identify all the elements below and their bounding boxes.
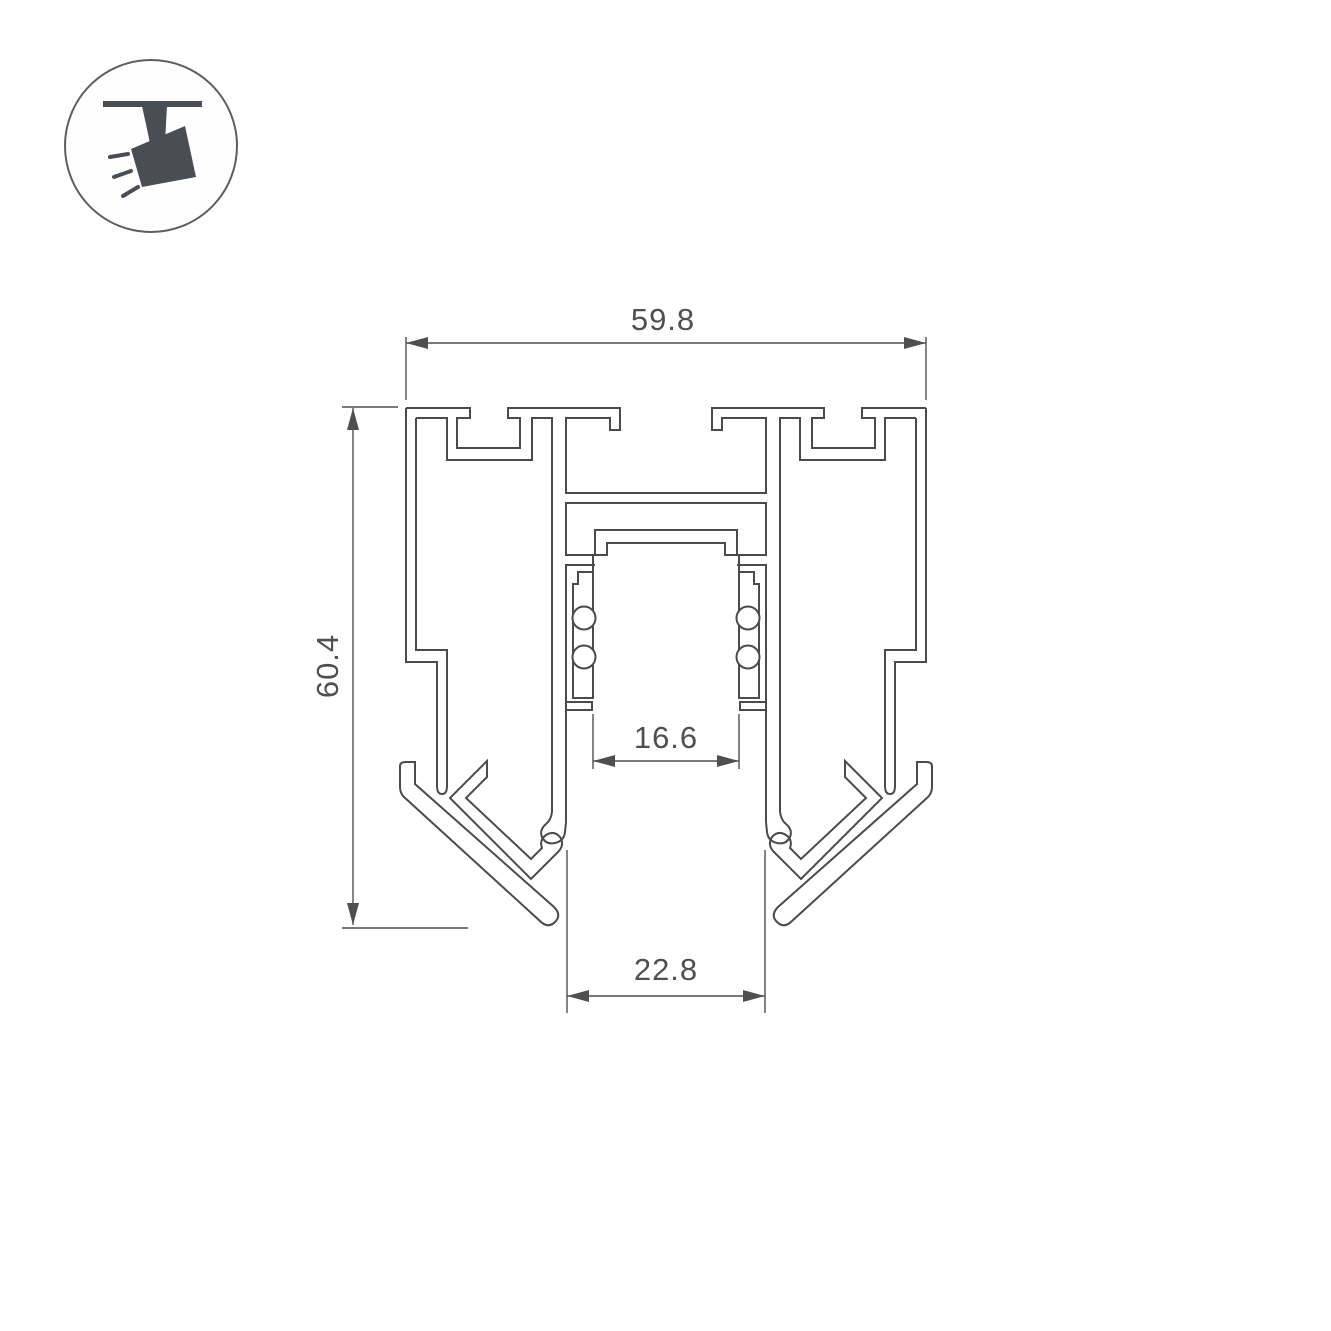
arrowhead-top <box>347 408 359 430</box>
arrowhead-left <box>567 990 589 1002</box>
arrowhead-left <box>406 337 428 349</box>
dimension-label-left-height: 60.4 <box>310 634 345 698</box>
profile-cross-section-drawing: 59.8 60.4 16.6 22.8 <box>0 0 1331 1331</box>
technical-drawing-page: 59.8 60.4 16.6 22.8 <box>0 0 1331 1331</box>
dimension-inner-width: 16.6 <box>593 714 739 769</box>
dimension-label-inner-width: 16.6 <box>634 720 698 755</box>
dimension-label-top-width: 59.8 <box>631 302 695 337</box>
dimension-bottom-width: 22.8 <box>567 850 765 1013</box>
arrowhead-right <box>717 755 739 767</box>
conductor-contact-lower <box>573 646 596 669</box>
dimension-top-width: 59.8 <box>406 302 926 400</box>
arrowhead-right <box>743 990 765 1002</box>
conductor-contact-upper <box>573 607 596 630</box>
arrowhead-bottom <box>347 903 359 925</box>
dimension-left-height: 60.4 <box>310 407 468 928</box>
arrowhead-left <box>593 755 615 767</box>
dimension-label-bottom-width: 22.8 <box>634 952 698 987</box>
arrowhead-right <box>904 337 926 349</box>
track-spotlight-icon <box>65 60 237 232</box>
profile-left-half <box>400 408 667 925</box>
profile-right-half <box>665 408 932 925</box>
